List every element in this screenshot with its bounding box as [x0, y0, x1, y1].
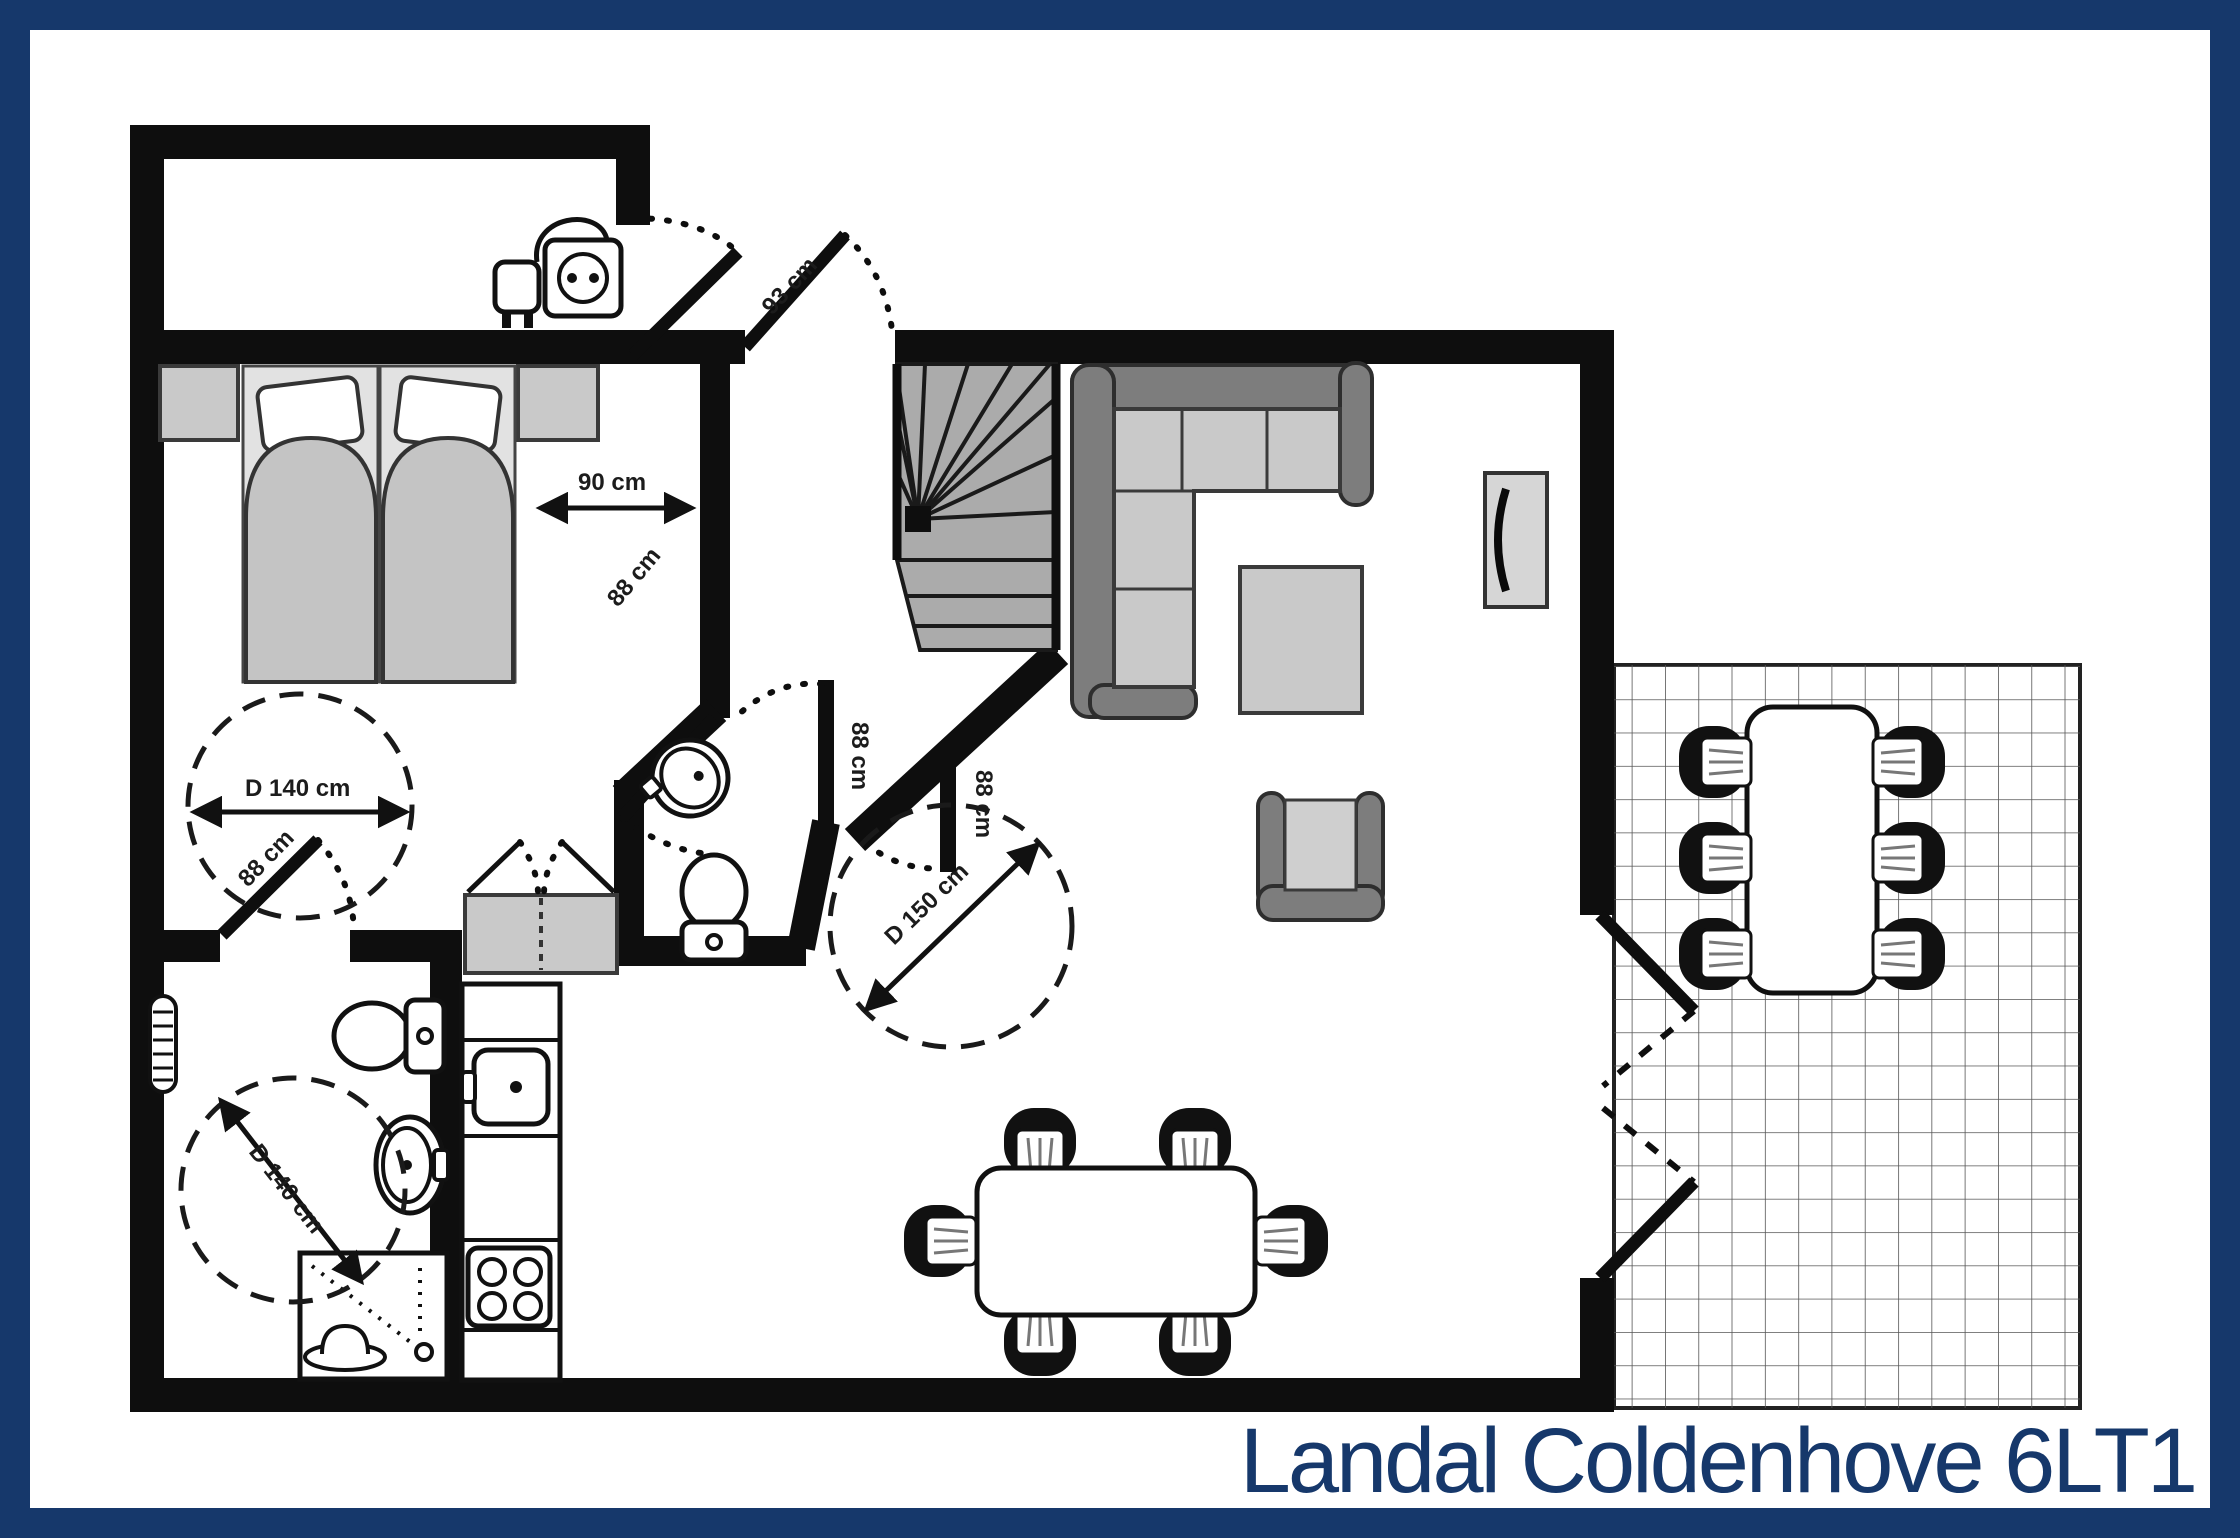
floor-plan: 93 cm 88 cm 88 cm 88 cm 88 cm — [0, 0, 2240, 1538]
power-socket-icon — [495, 220, 621, 328]
radiator — [150, 996, 176, 1092]
terrace-chair — [1679, 918, 1751, 990]
label-bathroom-door: 88 cm — [233, 824, 300, 892]
label-bed-passage: 90 cm — [578, 469, 646, 496]
turning-circle-bedroom: D 140 cm — [188, 694, 412, 918]
terrace-chair — [1873, 918, 1945, 990]
toilet — [682, 855, 746, 960]
turning-circle-bathroom: D 140 cm — [181, 1078, 405, 1302]
nightstand-right — [518, 366, 598, 440]
tv-cabinet — [1485, 473, 1547, 607]
label-entrance-door: 93 cm — [757, 252, 823, 320]
bedroom: 90 cm D 140 cm — [160, 366, 690, 918]
label-circle-bathroom: D 140 cm — [243, 1139, 329, 1239]
bathroom-door: 88 cm — [222, 824, 354, 935]
stairs — [897, 364, 1056, 650]
bed-single-right — [380, 366, 515, 682]
label-hall-door: 88 cm — [846, 722, 873, 790]
terrace-table — [1747, 707, 1877, 993]
washbasin — [632, 724, 744, 835]
terrace-chair — [1679, 726, 1751, 798]
terrace — [1614, 665, 2080, 1408]
stair-newel-post — [905, 506, 931, 532]
bathroom: D 140 cm — [150, 996, 448, 1379]
stove — [468, 1248, 550, 1326]
wardrobe — [465, 842, 617, 973]
kitchen-sink — [462, 1050, 548, 1124]
plan-title: Landal Coldenhove 6LT1 — [1240, 1410, 2195, 1512]
terrace-chair — [1873, 822, 1945, 894]
kitchen-counter — [462, 984, 560, 1380]
label-circle-bedroom: D 140 cm — [245, 775, 350, 802]
terrace-chair — [1679, 822, 1751, 894]
armchair — [1258, 793, 1383, 920]
toilet — [334, 1000, 444, 1072]
terrace-chair — [1873, 726, 1945, 798]
label-living-door: 88 cm — [970, 770, 997, 838]
label-bedroom-door: 88 cm — [602, 542, 666, 611]
entrance-door: 93 cm — [745, 235, 893, 347]
hall-door: 88 cm — [737, 684, 873, 790]
coffee-table — [1240, 567, 1362, 713]
floor-plan-page: 93 cm 88 cm 88 cm 88 cm 88 cm — [0, 0, 2240, 1538]
dining-chair — [904, 1205, 976, 1277]
dining-chair — [1256, 1205, 1328, 1277]
shower — [300, 1253, 447, 1379]
bed-passage-dimension: 90 cm — [542, 469, 690, 508]
label-circle-hall: D 150 cm — [879, 858, 974, 951]
dining-table — [977, 1168, 1255, 1315]
bed-single-left — [243, 366, 378, 682]
nightstand-left — [160, 366, 238, 440]
dining-table-set — [904, 1108, 1328, 1376]
